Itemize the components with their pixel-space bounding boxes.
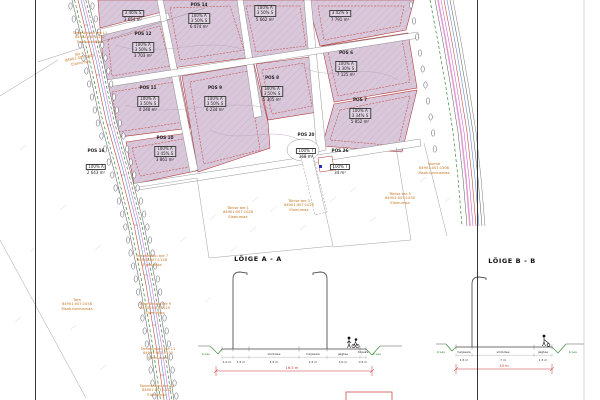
street-lamp-icon (233, 272, 247, 349)
section-b-drawing (436, 277, 584, 374)
ditch-slope-left-b (446, 344, 456, 351)
segment-label: kraav (202, 352, 210, 356)
title-block-fragment (346, 392, 392, 400)
section-a-total-dim: 16,5 m (286, 366, 299, 370)
cadastral-label: Tõnise tee 384901:007:1029Elamumaa (284, 199, 314, 212)
cadastral-label: Tõnise tee 584901:007:1030Elamumaa (385, 192, 415, 205)
plot-label-pos-12: POS 12 100% Ä3 50% S 3 703 m² (132, 32, 154, 59)
segment-dim: 1,5 m (237, 360, 246, 364)
segment-dim: 4,5 m (270, 360, 279, 364)
plot-area: 3 703 m² (132, 54, 154, 58)
segment-dim: 3,0 m (339, 360, 348, 364)
plot-label-pos-6: POS 6 100% Ä3 30% S 7 125 m² (335, 51, 357, 78)
segment-dim: 1,0 m (223, 360, 232, 364)
pedestrian-icon (347, 337, 351, 348)
segment-label: haljasala (457, 350, 470, 354)
segment-dim: 1,5 m (460, 358, 469, 362)
plot-label-pos-20: POS 20 100% T 368 m² (296, 133, 316, 160)
segment-label: kraav (437, 350, 445, 354)
section-a-title: LÕIGE A - A (234, 255, 282, 263)
plot-ratio: 3 50% S (135, 48, 152, 53)
plot-label-pos-14: POS 14 100% Ä3 50% S 6 474 m² (188, 3, 210, 30)
plot-label-pos-7: POS 7 100% Ä3 34% S 5 852 m² (349, 98, 371, 125)
cyclist-icon (352, 339, 359, 348)
street-lamp-icon (472, 277, 486, 347)
segment-label: haljasala (358, 351, 369, 354)
plot-label-pos-8: POS 8 100% Ä3 50% S 5 305 m² (261, 76, 283, 103)
ditch-slope-right-b (552, 344, 566, 353)
plot-label-pos-11: POS 11 100% Ä3 50% S 4 240 m² (137, 86, 159, 113)
drawing-sheet: { "plan": { "plots": [ {"name":"POS 12",… (0, 0, 600, 400)
plot-name: POS 12 (132, 32, 154, 37)
ditch-slope-left-a (210, 346, 222, 354)
segment-label: sõidutee (497, 350, 510, 354)
stroller-person-icon (543, 335, 550, 347)
cadastral-label: Tammõniidu tee 1384901:007:1131Elamumaa (140, 384, 175, 397)
plot-label-pos-16: POS 16 100% Ä 2 643 m² (86, 149, 106, 176)
cadastral-label: Tammõniidu tee L184901:007:1132Transpord… (73, 31, 107, 44)
segment-dim: 7 m (500, 358, 506, 362)
section-b-title: LÕIGE B - B (488, 257, 536, 265)
segment-dim: 2,5 m (309, 360, 318, 364)
plot-label-fragment-c: 3 42% S 7 791 m² (329, 0, 351, 22)
segment-dim: 0,5 m (359, 360, 368, 364)
segment-label: kraav (569, 350, 577, 354)
cadastral-label: Tammõniidu tee 1184901:007:1130Elamumaa (141, 347, 176, 360)
street-lamp-icon (313, 272, 327, 349)
segment-label: kraav (373, 352, 381, 356)
segment-label: jalgtee (538, 350, 548, 354)
plot-label-fragment-a: 3 46% S 3 654 m² (122, 0, 144, 22)
plot-label-pos-9: POS 9 100% Ä3 50% S 6 234 m² (204, 86, 226, 113)
cadastral-label: Tammõniidu tee 784901:007:1128Elamumaa (136, 254, 168, 267)
segment-label: sõidutee (268, 352, 281, 356)
segment-dim: 1,5 m (539, 358, 548, 362)
plot-label-pos-26: POS 26 100% T 34 m² (330, 149, 350, 176)
section-b-total-dim: 10 m (499, 364, 508, 368)
segment-label: haljasala (306, 352, 319, 356)
segment-label: jalgtee (338, 352, 348, 356)
plot-label-fragment-b: 100% Ä3 50% S 5 662 m² (254, 0, 276, 22)
cadastral-label: Tammõniidu tee 984901:007:1129Elamumaa (139, 302, 171, 315)
cadastral-label: Nurme84901:007:1308Maatulundusmaa (418, 162, 449, 175)
hydrant-marker (319, 165, 322, 168)
plot-label-pos-10: POS 10 100% Ä3 45% S 3 861 m² (154, 136, 176, 163)
cadastral-label: Tara84901:007:1058Maatulundusmaa (61, 298, 92, 311)
cadastral-label: Tõnise tee 184901:007:1028Elamumaa (223, 206, 253, 219)
